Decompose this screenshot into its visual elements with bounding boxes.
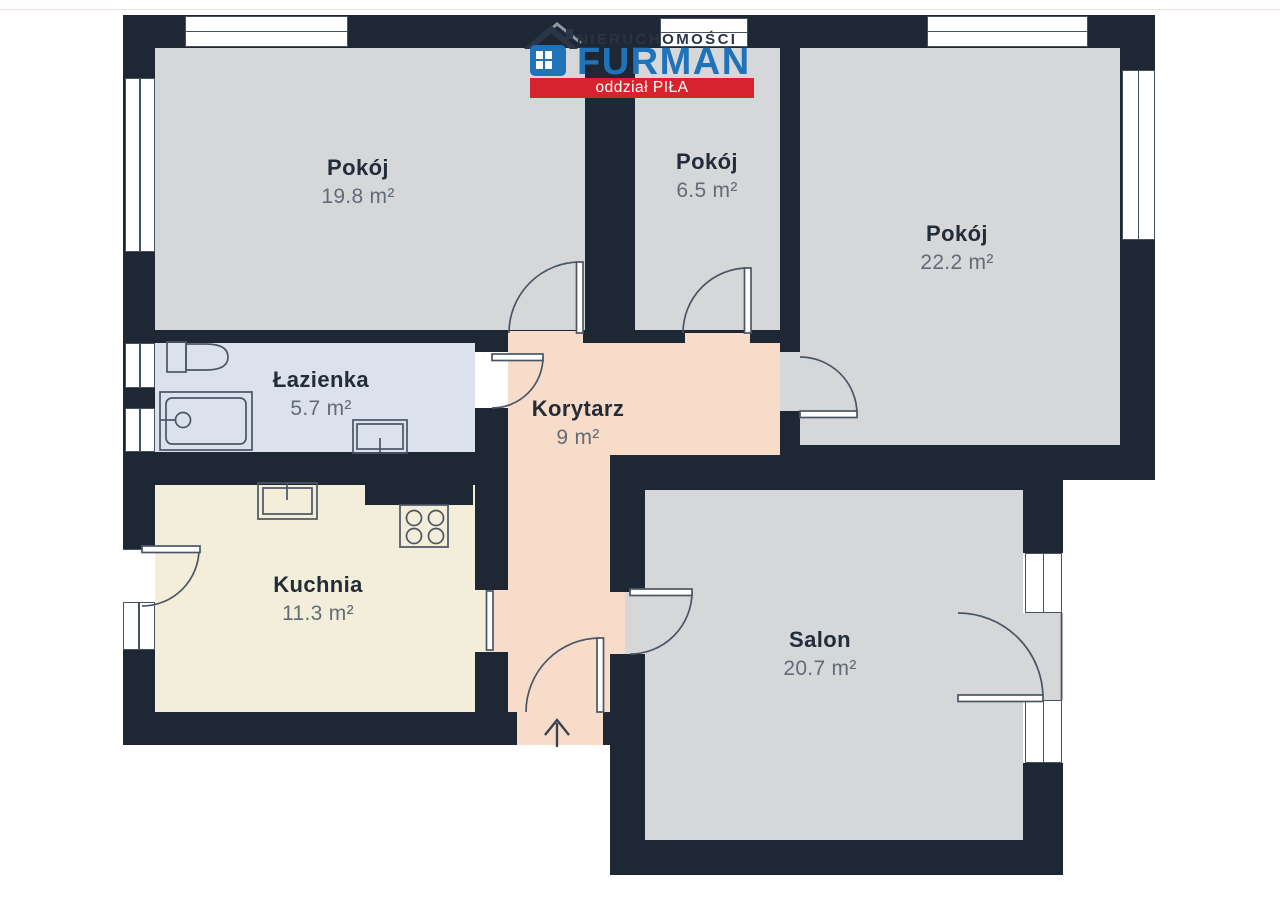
wall-korytarz-pokoj3 [780,343,800,352]
label-kuchnia: Kuchnia 11.3 m² [273,572,363,626]
agency-logo: NIERUCHOMOŚCI FURMAN oddział PIŁA [524,12,764,104]
window-icon [125,408,155,452]
room-name: Pokój [920,221,993,247]
logo-banner: oddział PIŁA [530,78,754,98]
logo-banner-text: oddział PIŁA [595,79,688,97]
wall-kuchnia-bottom [123,712,517,745]
window-icon [1025,700,1062,763]
window-icon [123,602,155,650]
room-name: Łazienka [273,367,369,393]
doorway-pokoj3 [780,352,800,411]
window-icon [185,16,348,47]
logo-text-furman: FURMAN [577,43,751,81]
wall-salon-right [1023,490,1063,553]
label-pokoj-1: Pokój 19.8 m² [321,155,394,209]
doorway-pokoj2 [685,333,750,343]
room-name: Pokój [676,149,738,175]
label-salon: Salon 20.7 m² [783,627,856,681]
window-icon [125,343,155,388]
wall-kuchnia-korytarz [475,408,508,590]
room-area: 11.3 m² [273,602,363,626]
entrance-threshold [517,712,603,745]
room-area: 9 m² [532,426,624,450]
room-name: Pokój [321,155,394,181]
wall-salon-top [610,455,1063,490]
doorway-salon [610,592,625,654]
doorway-pokoj1 [508,331,583,343]
room-name: Korytarz [532,396,624,422]
room-area: 6.5 m² [676,179,738,203]
window-icon [927,16,1088,47]
wall-kitchen-nook [365,485,473,505]
room-area: 22.2 m² [920,251,993,275]
wall-salon-right [1023,763,1063,840]
house-icon [524,20,582,76]
wall-salon-left [610,490,645,592]
wall-pokoj2-pokoj3 [780,48,800,350]
label-pokoj-2: Pokój 6.5 m² [676,149,738,203]
salon-balcony-nook [1023,613,1063,700]
wall-lazienka-korytarz [475,343,508,352]
label-pokoj-3: Pokój 22.2 m² [920,221,993,275]
label-lazienka: Łazienka 5.7 m² [273,367,369,421]
room-name: Kuchnia [273,572,363,598]
wall-salon-bottom [610,840,1063,875]
room-korytarz-floor [508,455,610,712]
room-area: 19.8 m² [321,185,394,209]
room-name: Salon [783,627,856,653]
doorway-lazienka [475,352,508,408]
page-top-border [0,9,1280,10]
window-icon [1122,70,1155,240]
doorway-kuchnia [490,590,508,652]
balcony-opening [123,549,155,605]
window-icon [125,78,155,252]
floor-plan: Pokój 19.8 m² Pokój 6.5 m² Pokój 22.2 m²… [0,0,1280,906]
wall-lazienka-kuchnia [123,452,508,485]
room-area: 20.7 m² [783,657,856,681]
label-korytarz: Korytarz 9 m² [532,396,624,450]
room-area: 5.7 m² [273,397,369,421]
doorway-kuchnia [475,590,490,652]
doorway-salon [625,592,645,654]
wall-kuchnia-korytarz [475,652,508,712]
window-icon [1025,553,1062,613]
